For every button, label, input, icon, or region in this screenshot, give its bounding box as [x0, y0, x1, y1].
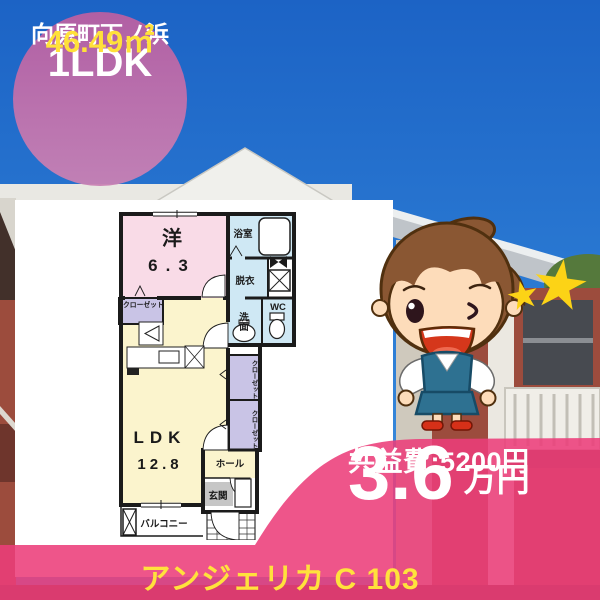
property-title: アンジェリカ C 103 — [55, 554, 505, 598]
common-fee: 共益費:5200円 — [348, 440, 530, 479]
property-area: 46.49㎡ — [46, 16, 155, 61]
rental-listing-card: 洋 6.3 LDK 12.8 浴室 脱衣 洗面 WC クローゼット クローゼット… — [0, 0, 600, 600]
property-badge: 1LDK 向原町下ノ浜 46.49㎡ — [13, 12, 187, 186]
